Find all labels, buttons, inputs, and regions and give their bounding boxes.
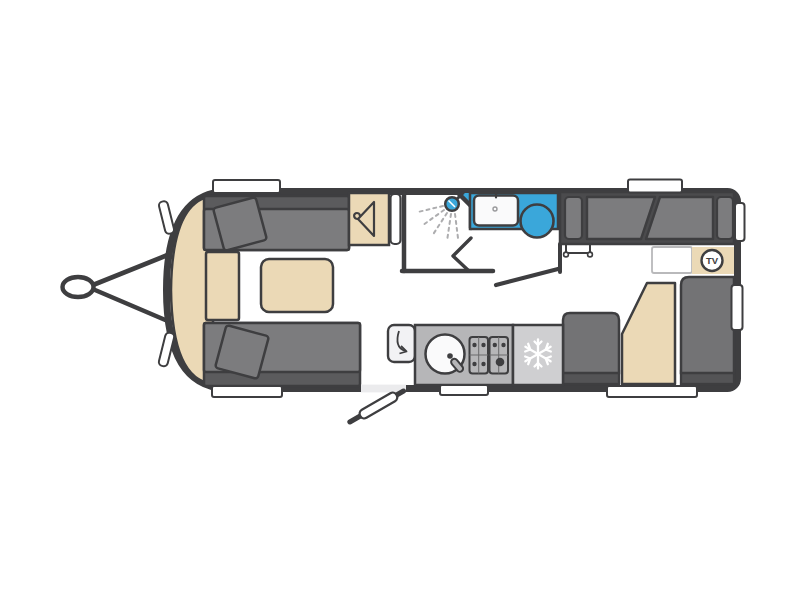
side-worktop [652, 247, 692, 273]
front-marker-top [158, 200, 175, 234]
window-bottom-rear [607, 386, 697, 397]
dinette-seat-right [681, 277, 734, 373]
tv-cabinet: TV [692, 247, 734, 274]
chest-of-drawers [206, 252, 239, 320]
hitch-bar-top [88, 254, 170, 287]
hob-burners-icon [470, 337, 509, 374]
shower-bifold-door [453, 238, 471, 271]
rear-dinette [563, 277, 734, 384]
coffee-table [261, 259, 333, 312]
window-right-top [735, 203, 745, 241]
worktop-flap [388, 325, 415, 362]
floorplan-canvas: TV [0, 0, 800, 600]
hitch-bar-bottom [88, 287, 170, 322]
hitch-coupling [63, 277, 94, 297]
front-sofa-bottom [204, 323, 360, 386]
armrest-right [717, 197, 733, 239]
window-top-rear [628, 180, 682, 193]
tow-hitch [63, 254, 171, 322]
window-top-front [213, 180, 280, 193]
sofa-cushion [215, 325, 269, 379]
window-bottom-kitchen [440, 385, 488, 395]
washroom [402, 190, 560, 286]
shower-head-icon [418, 191, 465, 241]
window-right-bottom [732, 285, 743, 330]
dinette-table [622, 283, 675, 384]
dinette-seat-left [563, 313, 619, 373]
washroom-door-open [496, 269, 558, 285]
armrest-left [565, 197, 582, 239]
kitchen [388, 325, 563, 385]
tv-label: TV [706, 255, 719, 266]
window-bottom-front [212, 386, 282, 397]
toilet [521, 205, 554, 238]
entry-door-open [348, 387, 406, 426]
sofa-cushion [213, 197, 267, 251]
pullout-support-bracket [564, 245, 593, 257]
front-sofa-top [204, 196, 349, 251]
wardrobe-mirror-strip [391, 194, 401, 244]
caravan-floorplan-image: TV [0, 0, 800, 600]
